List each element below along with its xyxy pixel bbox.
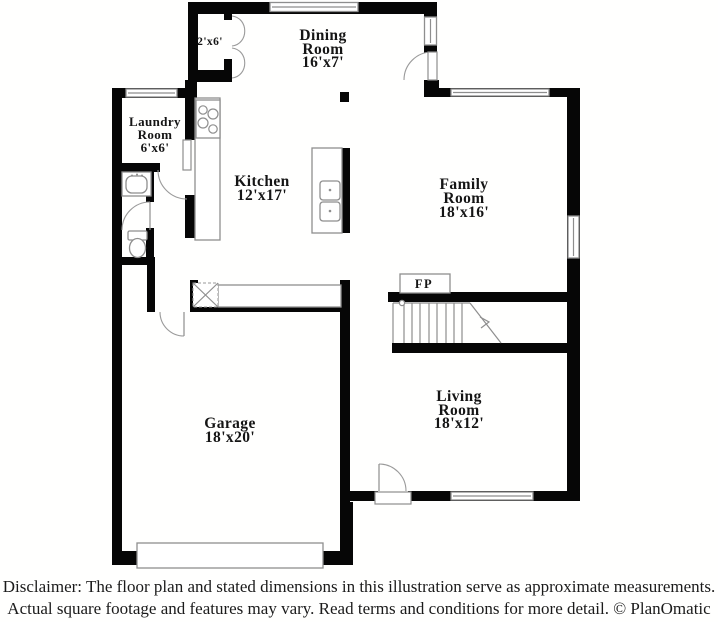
stair-diagonal bbox=[470, 303, 501, 343]
wall-left-outer bbox=[112, 88, 122, 565]
front-door-arc bbox=[379, 464, 406, 491]
faucet-dot bbox=[136, 174, 138, 176]
side-entry-door-leaf bbox=[428, 52, 437, 80]
closet-french-door-top-arc bbox=[232, 16, 245, 46]
disclaimer-line-1: Disclaimer: The floor plan and stated di… bbox=[0, 576, 718, 598]
dining-post bbox=[340, 92, 349, 102]
garage-dims: 18'x20' bbox=[205, 429, 255, 446]
family-room-dims: 18'x16' bbox=[439, 204, 489, 221]
closet-french-door-bottom-arc bbox=[232, 48, 245, 78]
fireplace-label: FP bbox=[415, 277, 433, 291]
bathroom-sink-basin bbox=[126, 176, 147, 193]
wall-entry-corner bbox=[424, 80, 439, 97]
stair-newel-post bbox=[399, 300, 404, 305]
wall-living-bottom-left bbox=[348, 491, 378, 501]
dining-room-dims: 16'x7' bbox=[302, 54, 344, 71]
floorplan-image: Dining Room 16'x7' 2'x6' Laundry Room 6'… bbox=[0, 0, 718, 622]
wall-closet-jamb-top bbox=[224, 13, 232, 20]
wall-entry-hall bbox=[147, 257, 155, 312]
sink-drain bbox=[329, 189, 332, 192]
kitchen-counter-south bbox=[218, 285, 341, 307]
closet-dims: 2'x6' bbox=[197, 36, 223, 48]
garage-entry-door-arc bbox=[160, 312, 184, 336]
floorplan-drawing: Dining Room 16'x7' 2'x6' Laundry Room 6'… bbox=[0, 0, 718, 575]
stairs bbox=[393, 300, 501, 343]
wall-stairs-bottom bbox=[392, 343, 580, 353]
powder-door-arc bbox=[122, 202, 150, 230]
faucet-dot bbox=[141, 175, 143, 177]
disclaimer: Disclaimer: The floor plan and stated di… bbox=[0, 576, 718, 619]
laundry-door-arc bbox=[158, 170, 187, 199]
walls bbox=[112, 2, 580, 565]
garage-door bbox=[137, 543, 323, 568]
toilet-bowl bbox=[130, 239, 146, 258]
laundry-door-leaf bbox=[183, 140, 191, 170]
disclaimer-line-2: Actual square footage and features may v… bbox=[0, 598, 718, 620]
kitchen-dims: 12'x17' bbox=[237, 187, 287, 204]
wall-closet-jamb-bottom bbox=[224, 59, 232, 71]
laundry-room-dims: 6'x6' bbox=[141, 140, 170, 155]
sink-drain bbox=[329, 210, 332, 213]
faucet-dot bbox=[131, 175, 133, 177]
living-room-dims: 18'x12' bbox=[434, 415, 484, 432]
wall-garage-right bbox=[340, 280, 350, 502]
front-door-threshold bbox=[375, 492, 411, 504]
wall-entry-side-top bbox=[424, 2, 437, 17]
